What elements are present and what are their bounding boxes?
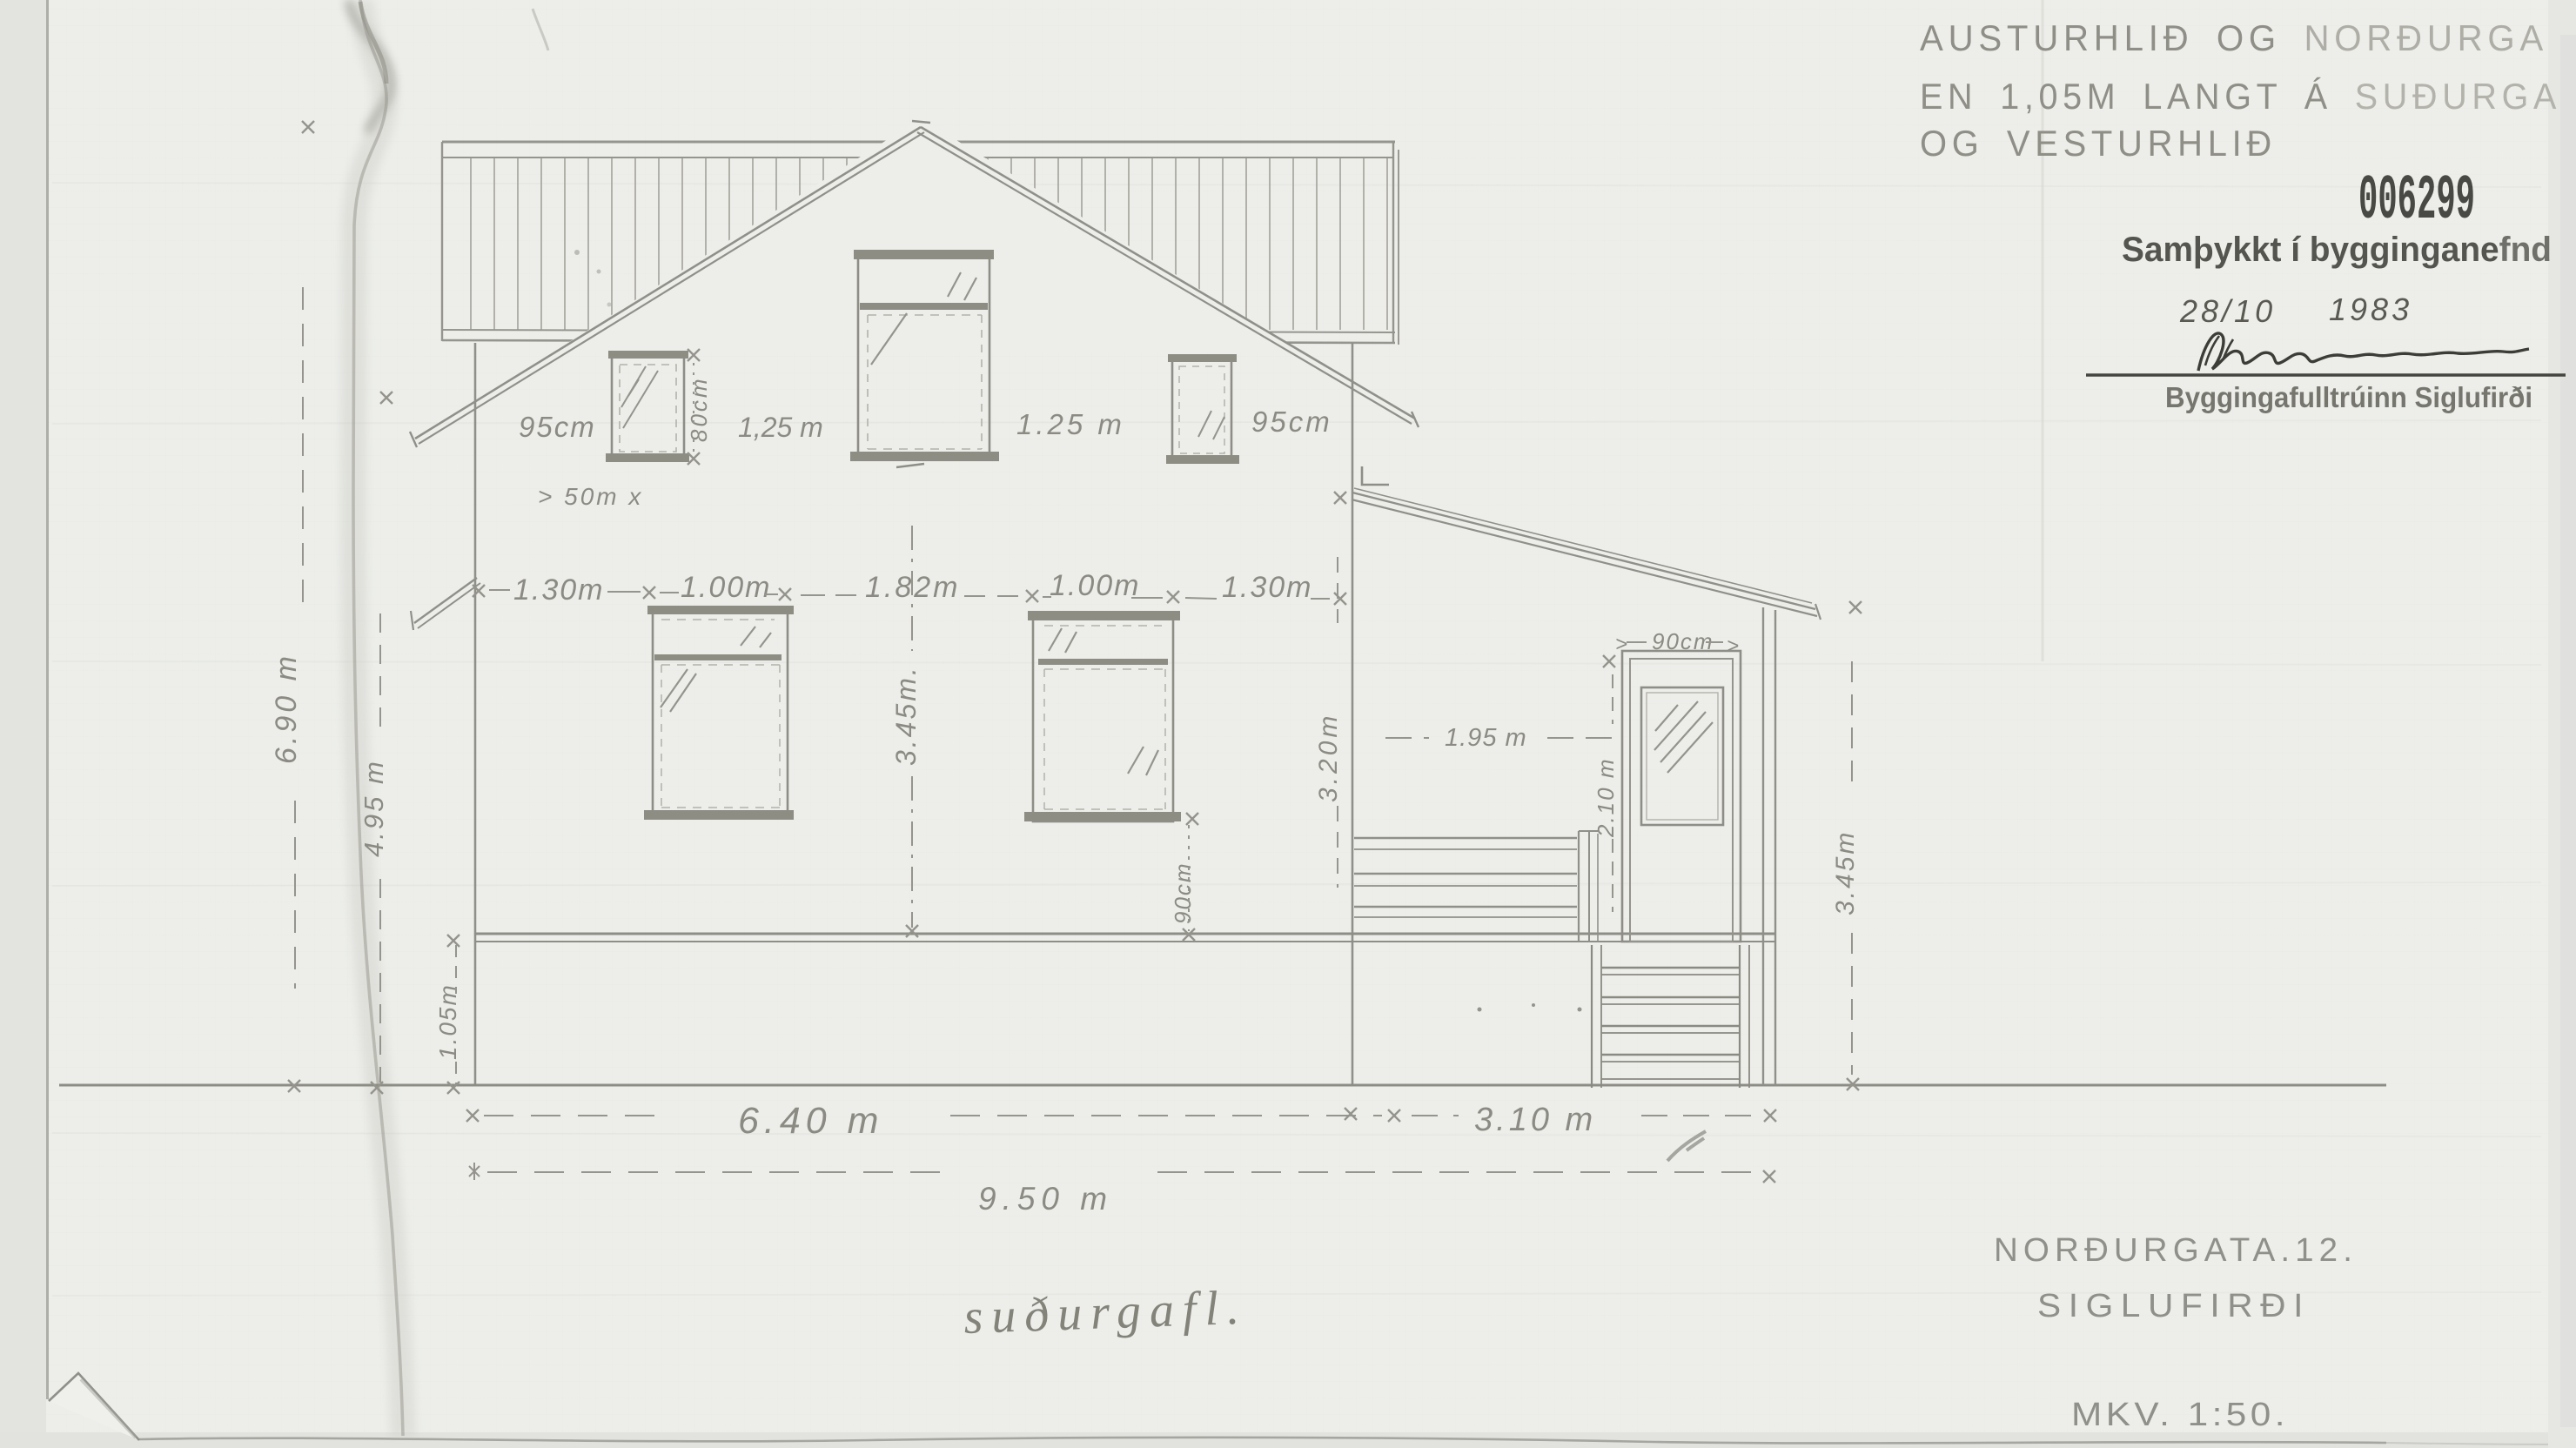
svg-text:6.90 m: 6.90 m (270, 653, 303, 764)
svg-text:AUSTURHLIÐ OG NORÐURGA: AUSTURHLIÐ OG NORÐURGA (1920, 17, 2548, 58)
svg-text:NORÐURGATA.12.: NORÐURGATA.12. (1994, 1232, 2358, 1269)
svg-text:1.95 m: 1.95 m (1445, 724, 1527, 752)
svg-text:SIGLUFIRÐI: SIGLUFIRÐI (2037, 1288, 2311, 1324)
svg-text:EN 1,05M LANGT Á SUÐURGA: EN 1,05M LANGT Á SUÐURGA (1920, 76, 2561, 117)
svg-text:1.00m: 1.00m (681, 571, 772, 604)
svg-text:1.05m: 1.05m (434, 983, 461, 1060)
svg-text:2.10 m: 2.10 m (1593, 758, 1619, 839)
svg-text:1.30m: 1.30m (513, 573, 605, 607)
svg-text:80cm: 80cm (686, 376, 712, 442)
svg-text:Byggingafulltrúinn Siglufirði: Byggingafulltrúinn Siglufirði (2165, 381, 2532, 413)
svg-text:6.40 m: 6.40 m (738, 1100, 883, 1142)
svg-text:1.30m: 1.30m (1222, 571, 1313, 604)
svg-text:3.45m.: 3.45m. (890, 665, 922, 766)
svg-text:95cm: 95cm (1251, 406, 1332, 438)
svg-text:1.25 m: 1.25 m (1016, 408, 1125, 440)
svg-text:1.00m: 1.00m (1050, 569, 1141, 602)
svg-text:OG VESTURHLIÐ: OG VESTURHLIÐ (1920, 123, 2277, 164)
svg-text:MKV. 1:50.: MKV. 1:50. (2071, 1397, 2289, 1433)
svg-text:3.20m: 3.20m (1314, 713, 1343, 802)
svg-text:28/10: 28/10 (2179, 293, 2276, 329)
svg-text:9.50 m: 9.50 m (978, 1181, 1113, 1217)
svg-text:>: > (1727, 634, 1739, 658)
svg-text:3.10 m: 3.10 m (1474, 1102, 1596, 1138)
svg-text:1,25 m: 1,25 m (738, 412, 823, 443)
svg-text:95cm: 95cm (519, 411, 596, 443)
svg-text:> 50m x: > 50m x (538, 483, 643, 510)
svg-text:006299: 006299 (2358, 165, 2475, 237)
svg-text:3.45m: 3.45m (1831, 830, 1860, 915)
svg-text:Samþykkt í bygginganefnd: Samþykkt í bygginganefnd (2122, 231, 2552, 269)
svg-text:90cm: 90cm (1652, 628, 1714, 654)
svg-text:1983: 1983 (2329, 292, 2412, 327)
svg-text:4.95 m: 4.95 m (359, 759, 389, 857)
svg-text:>: > (1615, 633, 1627, 656)
svg-text:90cm: 90cm (1170, 861, 1196, 924)
svg-text:suðurgafl.: suðurgafl. (963, 1281, 1249, 1344)
